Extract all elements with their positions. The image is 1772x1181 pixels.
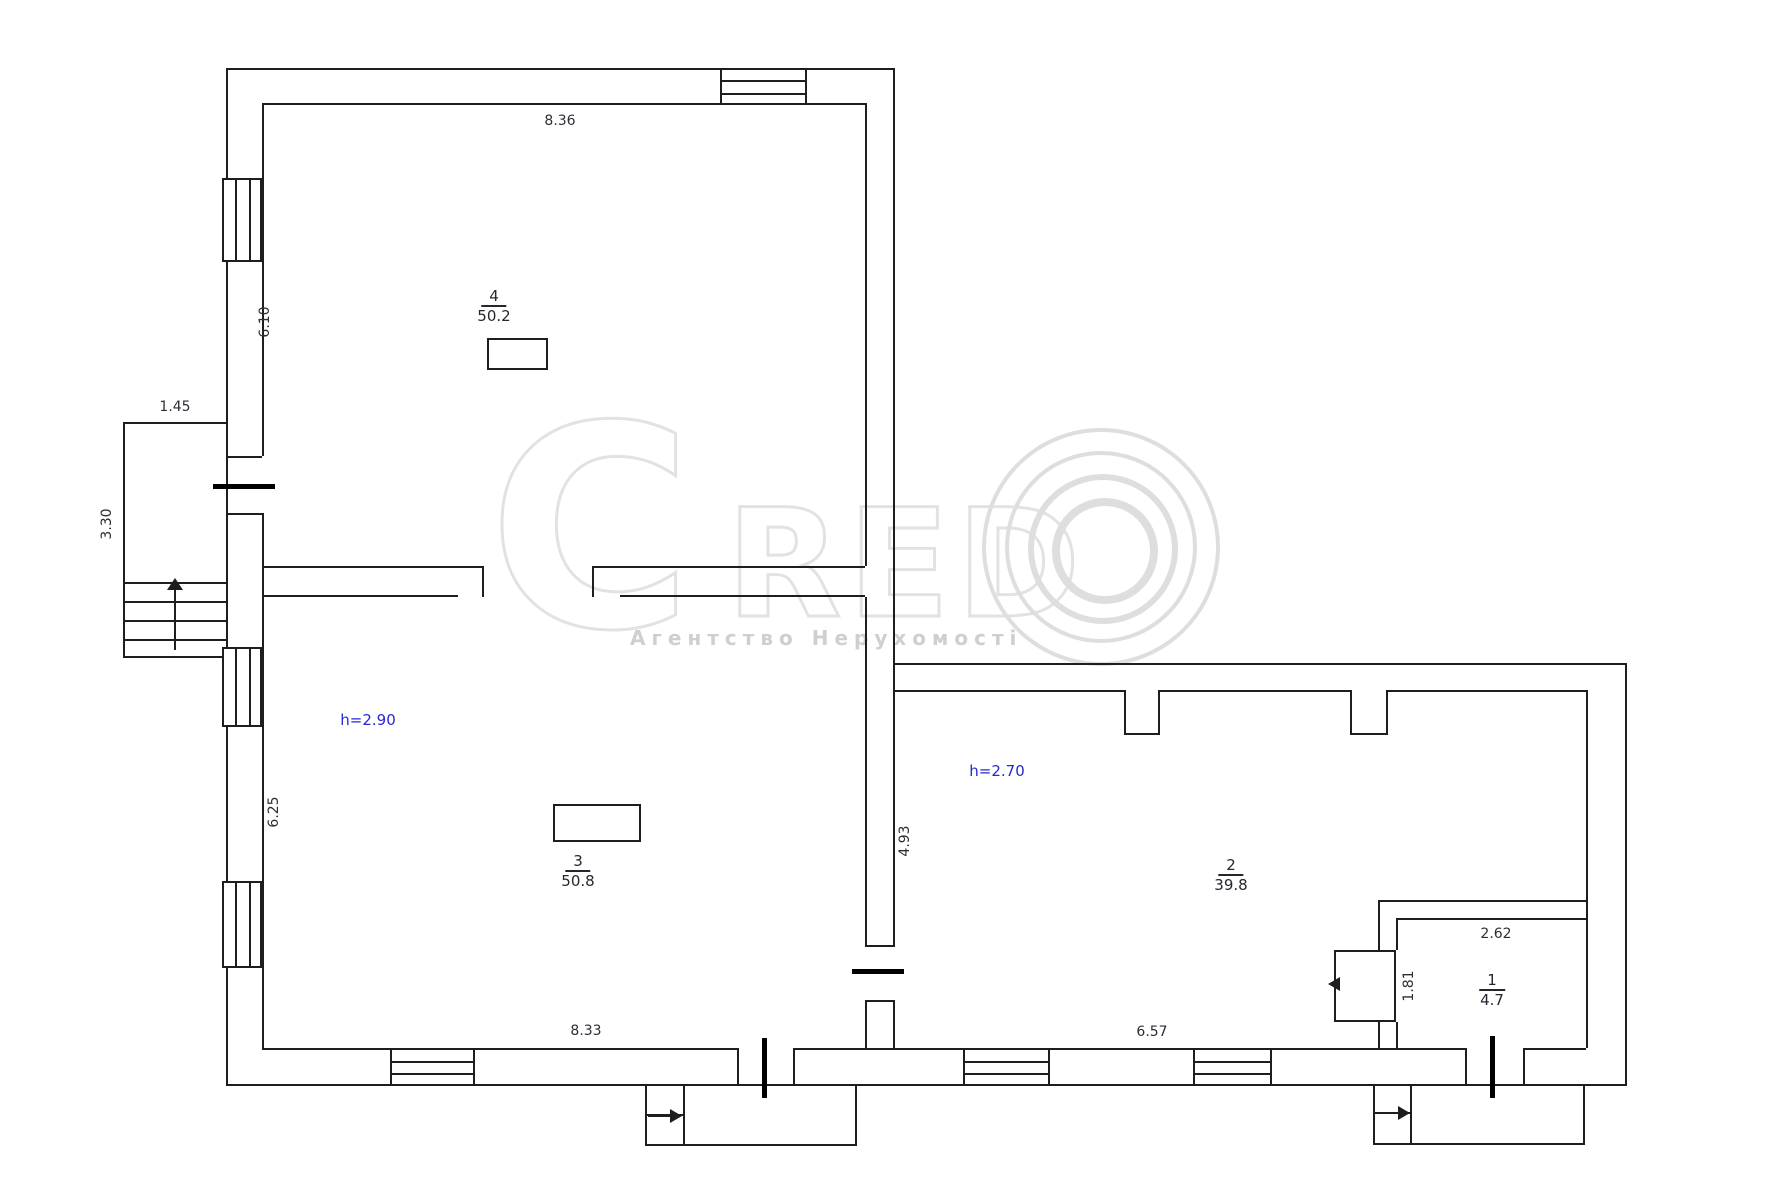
dim-porch-width: 1.45	[159, 399, 190, 415]
direction-arrow-icon	[1398, 1106, 1410, 1120]
room-3-number: 3	[565, 854, 591, 872]
room-2-label: 2 39.8	[1214, 855, 1247, 893]
room-3-area: 50.8	[561, 872, 594, 889]
dim-room1-height: 1.81	[1401, 970, 1417, 1001]
fixture-box	[553, 804, 641, 842]
height-label-room3: h=2.90	[340, 711, 395, 729]
window	[720, 68, 807, 105]
height-label-room2: h=2.70	[969, 762, 1024, 780]
wall-room4-room3	[262, 595, 458, 597]
wall-room1-left	[1378, 1022, 1380, 1048]
wall-room4-right-outer	[893, 68, 895, 597]
wall-inner-bottom	[1523, 1048, 1586, 1050]
wall-room3-room2	[893, 597, 895, 945]
wall-room4-right	[865, 103, 867, 566]
porch-outline	[855, 1084, 857, 1146]
window-mullion	[249, 649, 251, 725]
door-jamb	[482, 566, 484, 597]
wall-wing-top-outer	[893, 663, 1627, 665]
window	[222, 647, 262, 727]
porch-arrow-shaft	[648, 1115, 672, 1117]
porch-outline	[1373, 1143, 1585, 1145]
wall-wing-top-inner	[1388, 690, 1586, 692]
room-1-label: 1 4.7	[1479, 970, 1505, 1008]
door-jamb	[1465, 1048, 1467, 1086]
porch-outline	[123, 422, 125, 658]
window-mullion	[1195, 1073, 1270, 1075]
window-mullion	[235, 180, 237, 260]
door-leaf-tick	[1490, 1036, 1495, 1098]
wall-room3-room2	[893, 1000, 895, 1048]
fixture-box	[487, 338, 548, 370]
door-leaf-tick	[213, 484, 275, 489]
porch-outline	[123, 656, 228, 658]
door-jamb	[793, 1048, 795, 1086]
wall-room4-room3	[620, 595, 865, 597]
porch-step-divider	[683, 1084, 685, 1144]
room-1-area: 4.7	[1479, 991, 1505, 1008]
porch-outline	[123, 422, 226, 424]
porch-outline	[645, 1144, 857, 1146]
watermark-subtitle: Агентство Нерухомості	[630, 626, 1022, 650]
dim-room3-height: 6.25	[266, 796, 282, 827]
window-mullion	[235, 883, 237, 966]
window-mullion	[965, 1073, 1048, 1075]
wall-room4-room3	[592, 566, 865, 568]
porch-step-divider	[1410, 1084, 1412, 1143]
door-leaf-tick	[852, 969, 904, 974]
wall-room1-top	[1396, 918, 1586, 920]
room-4-number: 4	[481, 289, 507, 307]
door-jamb	[226, 456, 262, 458]
dim-room1-width: 2.62	[1480, 926, 1511, 942]
dim-room4-height: 6.10	[257, 306, 273, 337]
window-mullion	[722, 80, 805, 82]
wall-room3-room2	[865, 1000, 867, 1048]
pilaster	[1124, 733, 1160, 735]
wall-inner-left	[262, 513, 264, 1048]
wall-inner-right	[1586, 690, 1588, 1048]
window-mullion	[965, 1061, 1048, 1063]
window-mullion	[392, 1073, 473, 1075]
wall-room1-top	[1378, 900, 1586, 902]
wall-room3-room2	[865, 597, 867, 945]
room-2-area: 39.8	[1214, 876, 1247, 893]
window-mullion	[1195, 1061, 1270, 1063]
room-3-label: 3 50.8	[561, 851, 594, 889]
wall-wing-top-inner	[1160, 690, 1350, 692]
wall-outer-right	[1625, 663, 1627, 1084]
door-jamb	[1523, 1048, 1525, 1086]
window-mullion	[722, 93, 805, 95]
window	[1193, 1048, 1272, 1086]
door-jamb	[592, 566, 594, 597]
pilaster	[1350, 690, 1352, 735]
porch-outline	[1583, 1084, 1585, 1145]
porch-outline	[1373, 1084, 1375, 1145]
room-1-number: 1	[1479, 973, 1505, 991]
door-jamb	[865, 945, 895, 947]
wall-inner-bottom	[793, 1048, 1465, 1050]
window-mullion	[249, 180, 251, 260]
stair-arrow-shaft	[174, 590, 176, 650]
room-4-area: 50.2	[477, 307, 510, 324]
pilaster	[1386, 690, 1388, 735]
room-2-number: 2	[1218, 858, 1244, 876]
room-4-label: 4 50.2	[477, 286, 510, 324]
dim-room2-width: 6.57	[1136, 1024, 1167, 1040]
wall-room1-left	[1396, 918, 1398, 950]
pilaster	[1124, 690, 1126, 735]
direction-arrow-icon	[167, 578, 183, 590]
wall-room1-left	[1396, 1022, 1398, 1048]
porch-outline	[645, 1084, 647, 1146]
wall-wing-top-inner	[895, 690, 1124, 692]
dim-porch-height: 3.30	[99, 508, 115, 539]
window	[963, 1048, 1050, 1086]
window	[390, 1048, 475, 1086]
window-mullion	[235, 649, 237, 725]
wall-room1-left	[1378, 900, 1380, 950]
watermark-ring-icon	[1052, 498, 1158, 604]
dim-room3-width: 8.33	[570, 1023, 601, 1039]
window-mullion	[392, 1061, 473, 1063]
door-leaf-tick	[762, 1038, 767, 1098]
door-jamb	[226, 513, 262, 515]
pilaster	[1158, 690, 1160, 735]
porch-arrow-shaft	[1376, 1112, 1400, 1114]
door-jamb	[865, 1000, 895, 1002]
direction-arrow-icon	[1328, 977, 1340, 991]
wall-inner-left	[262, 103, 264, 456]
ladder-box	[1334, 950, 1396, 1022]
window	[222, 881, 262, 968]
floor-plan: C RED Агентство Нерухомості 8.36 6.10 1.…	[0, 0, 1772, 1181]
door-jamb	[737, 1048, 739, 1086]
pilaster	[1350, 733, 1388, 735]
window	[222, 178, 262, 262]
direction-arrow-icon	[670, 1109, 682, 1123]
wall-room4-room3	[262, 566, 482, 568]
wall-inner-bottom	[262, 1048, 737, 1050]
dim-room2-left-height: 4.93	[897, 825, 913, 856]
window-mullion	[249, 883, 251, 966]
dim-room4-width: 8.36	[544, 113, 575, 129]
